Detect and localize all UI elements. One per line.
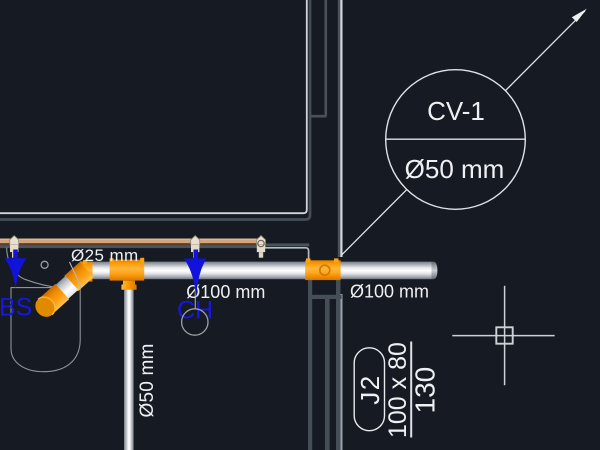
svg-text:Ø100 mm: Ø100 mm bbox=[350, 282, 429, 302]
svg-text:Ø50 mm: Ø50 mm bbox=[405, 154, 505, 184]
svg-text:100 x 80: 100 x 80 bbox=[384, 342, 412, 438]
svg-text:CV-1: CV-1 bbox=[427, 96, 485, 126]
svg-text:BS: BS bbox=[0, 294, 32, 322]
svg-text:J2: J2 bbox=[355, 374, 385, 404]
svg-text:Ø50 mm: Ø50 mm bbox=[137, 343, 158, 417]
svg-text:Ø25 mm: Ø25 mm bbox=[71, 246, 139, 265]
svg-text:130: 130 bbox=[410, 367, 441, 414]
